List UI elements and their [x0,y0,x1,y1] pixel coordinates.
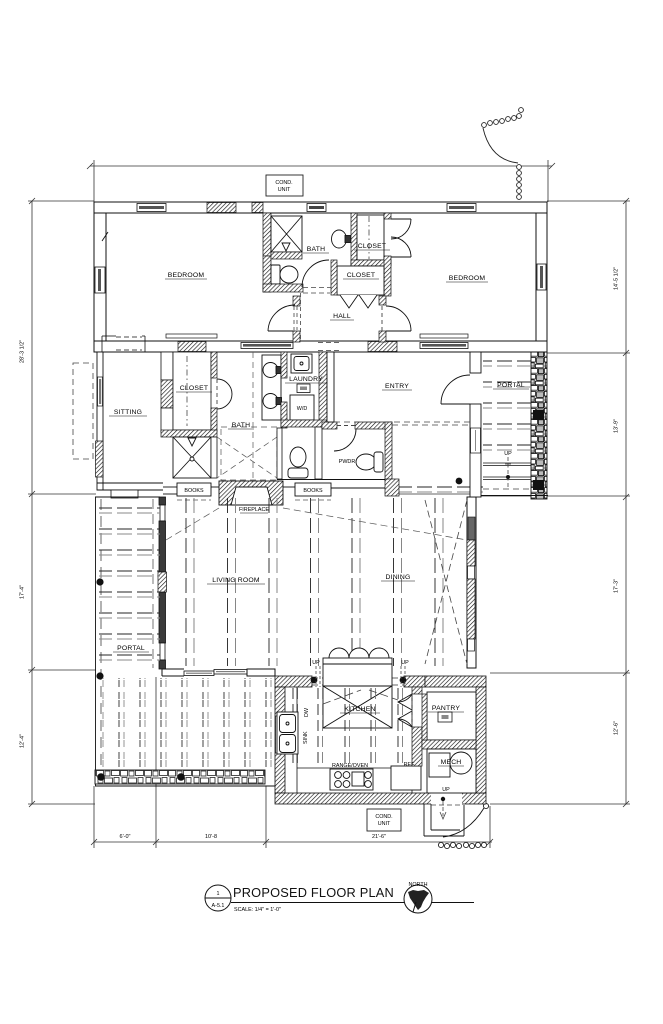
svg-text:SCALE: 1/4" = 1'-0": SCALE: 1/4" = 1'-0" [234,907,281,913]
svg-text:6'-0": 6'-0" [120,834,131,840]
svg-text:CLOSET: CLOSET [180,385,208,392]
svg-text:DW: DW [304,707,310,717]
svg-text:NORTH: NORTH [408,882,427,888]
svg-text:ENTRY: ENTRY [385,383,409,390]
svg-text:A-5.1: A-5.1 [212,903,225,909]
svg-text:LIVING ROOM: LIVING ROOM [212,577,260,584]
svg-text:LAUNDRY: LAUNDRY [289,376,323,383]
svg-text:BATH: BATH [307,246,325,253]
svg-text:1: 1 [217,891,220,897]
svg-text:SITTING: SITTING [114,409,142,416]
svg-text:UP: UP [401,660,409,666]
svg-text:12'-6": 12'-6" [614,721,620,735]
svg-text:PROPOSED FLOOR PLAN: PROPOSED FLOOR PLAN [233,885,394,900]
svg-text:HALL: HALL [333,313,351,320]
svg-text:BOOKS: BOOKS [184,488,204,494]
svg-text:DINING: DINING [386,574,411,581]
svg-text:FIREPLACE: FIREPLACE [239,507,269,513]
svg-text:13'-9": 13'-9" [614,419,620,433]
svg-text:BEDROOM: BEDROOM [449,275,486,282]
svg-text:BEDROOM: BEDROOM [168,272,205,279]
svg-text:UNIT: UNIT [278,187,291,193]
svg-text:PORTAL: PORTAL [117,645,145,652]
svg-text:17'-3": 17'-3" [614,579,620,593]
svg-text:21'-6": 21'-6" [372,834,386,840]
svg-text:PORTAL: PORTAL [497,382,525,389]
svg-text:PANTRY: PANTRY [432,705,460,712]
svg-text:MECH: MECH [441,759,462,766]
svg-text:BATH: BATH [232,422,250,429]
svg-text:W/D: W/D [297,406,308,412]
svg-text:17'-4": 17'-4" [20,585,26,599]
svg-text:UP: UP [504,451,512,457]
svg-text:14'-5 1/2": 14'-5 1/2" [614,267,620,290]
svg-text:UNIT: UNIT [378,821,391,827]
svg-text:COND.: COND. [275,180,292,186]
svg-text:RANGE/OVEN: RANGE/OVEN [332,763,368,769]
svg-text:UP: UP [312,660,320,666]
svg-text:12'-4": 12'-4" [20,734,26,748]
svg-text:SINK: SINK [303,731,309,744]
svg-text:10'-8: 10'-8 [205,834,217,840]
svg-text:CLOSET: CLOSET [347,272,375,279]
svg-text:BOOKS: BOOKS [303,488,323,494]
svg-text:PWDR: PWDR [339,459,356,465]
svg-text:COND.: COND. [375,814,392,820]
svg-text:CLOSET: CLOSET [358,243,386,250]
svg-text:28'-3 1/2": 28'-3 1/2" [20,340,26,363]
svg-text:UP: UP [442,787,450,793]
svg-text:REF: REF [404,762,415,768]
svg-text:KITCHEN: KITCHEN [344,706,375,713]
